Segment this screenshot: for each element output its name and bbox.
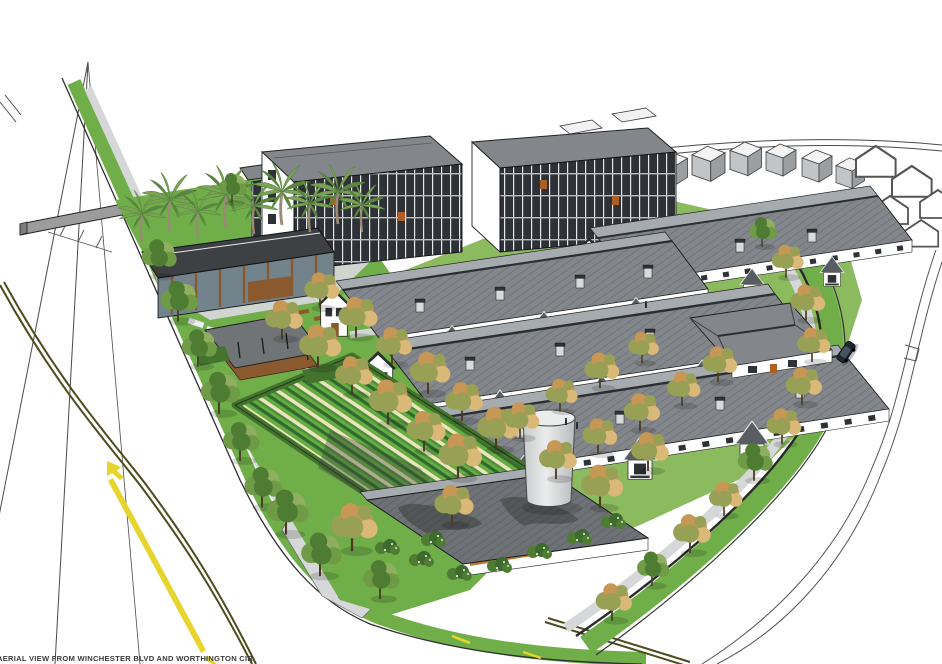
architectural-rendering-page: AERIAL VIEW FROM WINCHESTER BLVD AND WOR… xyxy=(0,0,942,664)
rendering-caption: AERIAL VIEW FROM WINCHESTER BLVD AND WOR… xyxy=(0,654,253,663)
aerial-rendering-canvas xyxy=(0,0,942,664)
